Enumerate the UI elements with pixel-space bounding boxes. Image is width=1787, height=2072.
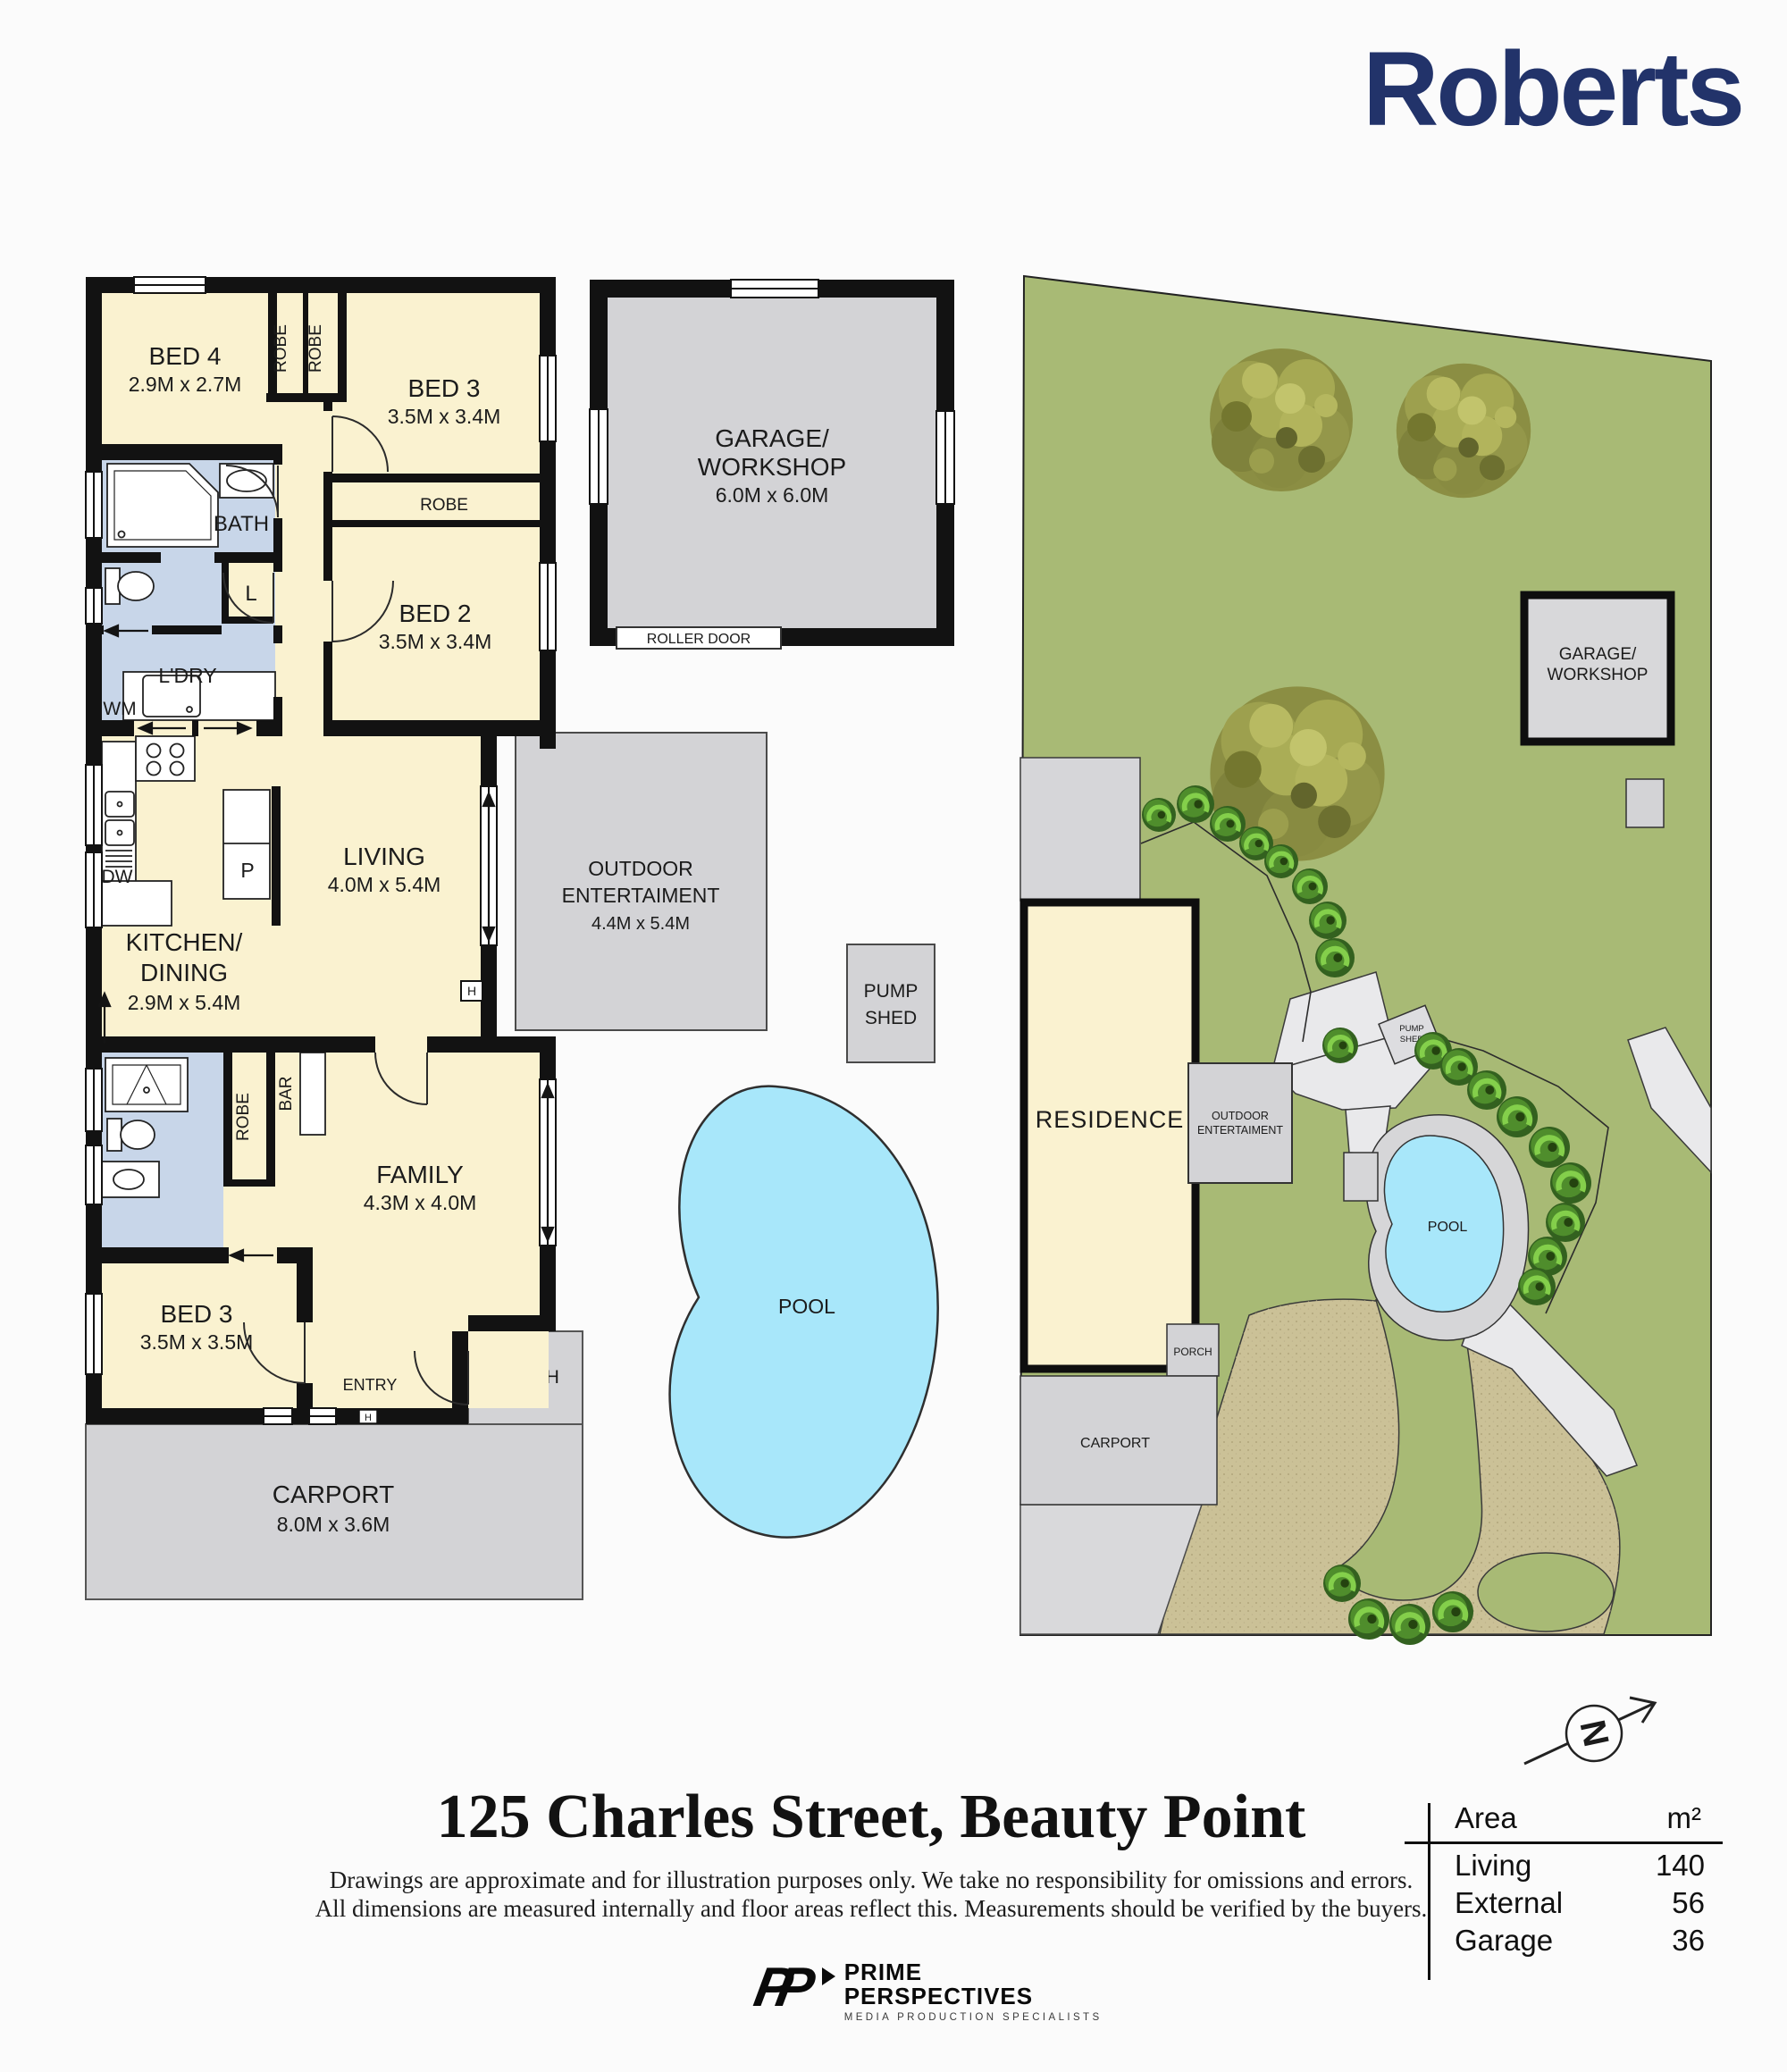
- site-carport-label: CARPORT: [1080, 1436, 1150, 1451]
- credit-brand-line2: PERSPECTIVES: [844, 1984, 1103, 2009]
- area-table-row: External 56: [1405, 1885, 1724, 1921]
- room-label-living: LIVING: [343, 843, 425, 870]
- site-outdoor: [1188, 1063, 1292, 1183]
- fp-robe-label: ROBE: [306, 324, 325, 373]
- svg-text:H: H: [467, 984, 476, 998]
- area-row-label: External: [1455, 1885, 1563, 1921]
- area-table-header: Area m²: [1405, 1798, 1724, 1846]
- fp-pump-label: PUMP: [864, 981, 919, 1002]
- site-garage-label: GARAGE/: [1559, 645, 1637, 664]
- disclaimer-line-1: Drawings are approximate and for illustr…: [206, 1866, 1537, 1894]
- area-table-row: Garage 36: [1405, 1923, 1724, 1959]
- room-dims-carport: 8.0M x 3.6M: [277, 1513, 390, 1536]
- site-plan: POOL PUMP SHED GARAGE/ WORKSHOP RESIDENC…: [1020, 276, 1711, 1645]
- fp-pantry-label: P: [240, 859, 254, 882]
- area-table-vline: [1428, 1803, 1430, 1980]
- fp-pump-shed: [847, 944, 935, 1062]
- site-driveway: [1020, 758, 1140, 901]
- room-label-family: FAMILY: [376, 1161, 464, 1188]
- room-dims-bed3-top: 3.5M x 3.4M: [388, 405, 501, 428]
- room-label-kitchen: KITCHEN/: [126, 928, 243, 956]
- site-lawn-blob: [1478, 1553, 1614, 1632]
- floor-plan: CARPORT 8.0M x 3.6M PORCH OUTDOOR ENTERT…: [86, 277, 954, 1599]
- area-row-label: Living: [1455, 1848, 1531, 1883]
- fp-carport: [86, 1424, 583, 1599]
- site-shed: [1626, 779, 1664, 827]
- fp-bath-label: BATH: [214, 512, 269, 536]
- pp-monogram-icon: PP: [751, 1960, 827, 2016]
- room-label-kitchen: DINING: [140, 959, 228, 986]
- credit-tagline: MEDIA PRODUCTION SPECIALISTS: [844, 2012, 1103, 2023]
- room-label-carport: CARPORT: [273, 1481, 394, 1508]
- room-dims-bed2: 3.5M x 3.4M: [379, 630, 492, 653]
- fp-entry-label: ENTRY: [343, 1376, 398, 1394]
- page: Roberts: [0, 0, 1787, 2072]
- site-residence: [1024, 902, 1196, 1369]
- area-table: Area m² Living 140 External 56 Garage 36: [1405, 1798, 1724, 1959]
- room-dims-bed4: 2.9M x 2.7M: [129, 373, 242, 396]
- site-porch-label: PORCH: [1173, 1346, 1212, 1358]
- fp-robe-label: ROBE: [420, 496, 468, 515]
- room-dims-kitchen: 2.9M x 5.4M: [128, 991, 241, 1014]
- area-table-col-unit: m²: [1667, 1801, 1701, 1835]
- area-row-label: Garage: [1455, 1923, 1553, 1959]
- fp-pump-label: SHED: [865, 1008, 917, 1028]
- room-label-bed2: BED 2: [399, 600, 472, 627]
- fp-laundry-label: L'DRY: [158, 664, 216, 687]
- room-dims-family: 4.3M x 4.0M: [364, 1191, 477, 1214]
- page-title: 125 Charles Street, Beauty Point: [250, 1782, 1492, 1853]
- room-dims-outdoor: 4.4M x 5.4M: [591, 914, 690, 934]
- room-label-bed3-top: BED 3: [408, 374, 481, 402]
- room-label-outdoor: ENTERTAIMENT: [562, 884, 720, 907]
- site-garage-label: WORKSHOP: [1548, 666, 1649, 684]
- site-residence-label: RESIDENCE: [1036, 1106, 1185, 1133]
- room-dims-bed3-lower: 3.5M x 3.5M: [140, 1330, 254, 1354]
- area-table-hline: [1405, 1841, 1723, 1844]
- fp-robe-label: ROBE: [234, 1093, 253, 1141]
- area-table-col-label: Area: [1455, 1801, 1517, 1835]
- prime-perspectives-logo: PP PRIME PERSPECTIVES MEDIA PRODUCTION S…: [755, 1960, 1103, 2023]
- room-dims-living: 4.0M x 5.4M: [328, 873, 441, 896]
- compass: N: [1524, 1698, 1655, 1764]
- fp-roller-door-label: ROLLER DOOR: [647, 632, 751, 647]
- room-label-bed3-lower: BED 3: [161, 1300, 233, 1328]
- fp-outdoor: [516, 733, 767, 1030]
- room-label-bed4: BED 4: [149, 342, 222, 370]
- disclaimer: Drawings are approximate and for illustr…: [206, 1866, 1537, 1923]
- svg-text:H: H: [365, 1413, 372, 1423]
- area-row-value: 36: [1672, 1923, 1705, 1959]
- area-row-value: 56: [1672, 1885, 1705, 1921]
- area-row-value: 140: [1656, 1848, 1705, 1883]
- site-pump-label: PUMP: [1399, 1024, 1423, 1034]
- fp-dw-label: DW: [102, 867, 133, 887]
- room-dims-garage: 6.0M x 6.0M: [716, 483, 829, 507]
- site-pool-label: POOL: [1428, 1220, 1468, 1235]
- fp-pool-label: POOL: [778, 1295, 835, 1318]
- fp-wm-label: WM: [103, 699, 136, 719]
- room-label-garage: WORKSHOP: [698, 453, 846, 481]
- room-label-outdoor: OUTDOOR: [588, 857, 693, 880]
- room-label-garage: GARAGE/: [715, 424, 829, 452]
- site-outdoor-label: OUTDOOR: [1212, 1110, 1269, 1122]
- credit-brand-line1: PRIME: [844, 1960, 1103, 1984]
- fp-linen-label: L: [245, 582, 256, 606]
- site-outdoor-label: ENTERTAIMENT: [1197, 1124, 1283, 1137]
- fp-bar-label: BAR: [277, 1076, 296, 1111]
- area-table-row: Living 140: [1405, 1848, 1724, 1883]
- fp-robe-label: ROBE: [272, 324, 290, 373]
- plan-canvas: POOL PUMP SHED GARAGE/ WORKSHOP RESIDENC…: [0, 0, 1787, 2072]
- disclaimer-line-2: All dimensions are measured internally a…: [206, 1894, 1537, 1923]
